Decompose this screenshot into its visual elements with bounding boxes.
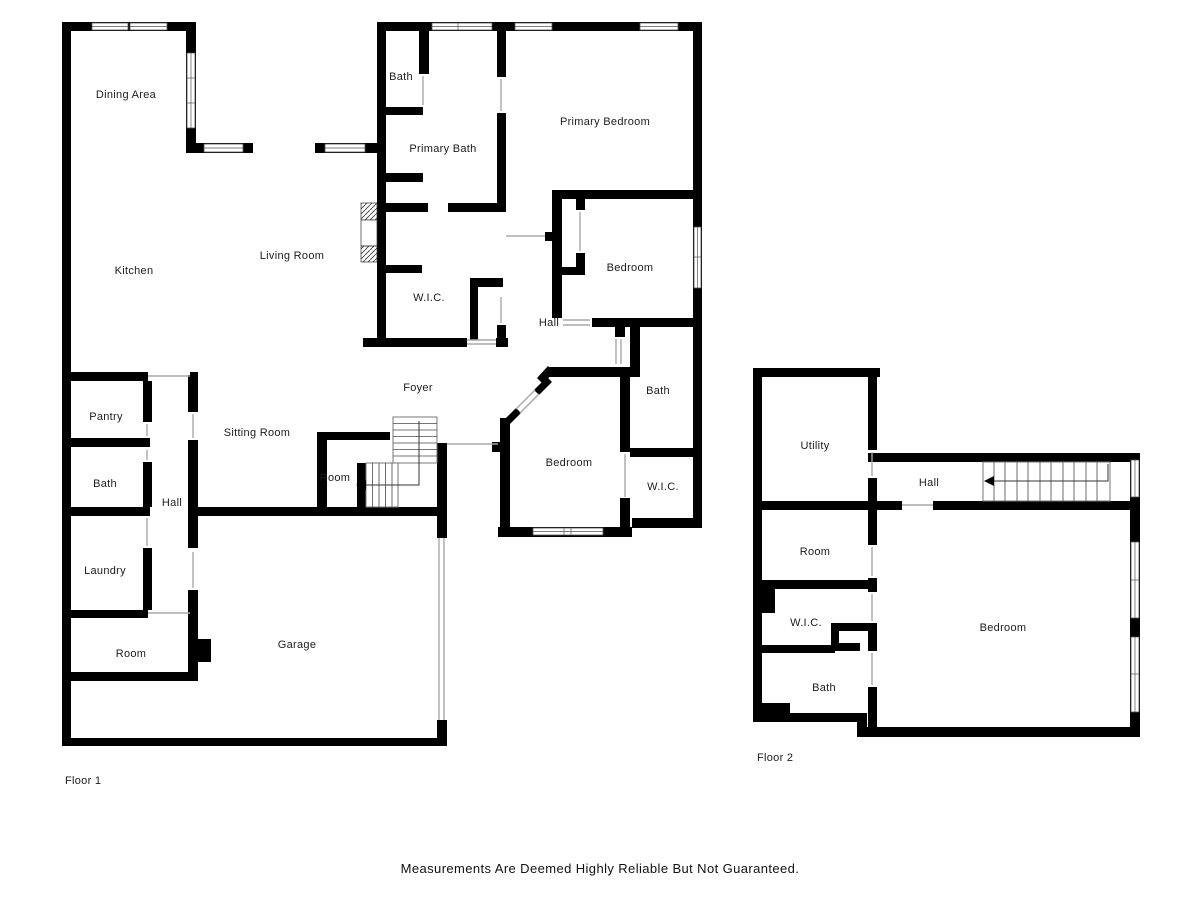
room-label-room-lower: Room	[116, 648, 147, 660]
room-label-wic-primary: W.I.C.	[413, 292, 445, 304]
floor2-title: Floor 2	[757, 752, 793, 764]
room-label-sitting-room: Sitting Room	[224, 427, 291, 439]
room-label-laundry: Laundry	[84, 565, 126, 577]
room-label-bath-floor2: Bath	[812, 682, 836, 694]
floor1-stairs	[356, 417, 437, 507]
floor-plan-page: Dining Area Bath Primary Bath Primary Be…	[0, 0, 1200, 900]
disclaimer-text: Measurements Are Deemed Highly Reliable …	[401, 861, 800, 876]
floor-plan-canvas: Dining Area Bath Primary Bath Primary Be…	[0, 0, 1200, 900]
room-label-foyer: Foyer	[403, 382, 433, 394]
floor1-walls	[62, 22, 702, 746]
room-label-hall-left: Hall	[162, 497, 182, 509]
room-label-kitchen: Kitchen	[115, 265, 154, 277]
room-label-living-room: Living Room	[260, 250, 324, 262]
room-label-bath-right: Bath	[646, 385, 670, 397]
floor2-stairs	[983, 462, 1110, 501]
room-label-utility: Utility	[801, 440, 830, 452]
room-label-hall-floor2: Hall	[919, 477, 939, 489]
room-label-hall-upper: Hall	[539, 317, 559, 329]
room-label-bath-top: Bath	[389, 71, 413, 83]
room-label-bath-left: Bath	[93, 478, 117, 490]
room-label-wic-right: W.I.C.	[647, 481, 679, 493]
room-label-room-floor2: Room	[800, 546, 831, 558]
room-label-bedroom-upper: Bedroom	[607, 262, 654, 274]
room-label-dining-area: Dining Area	[96, 89, 157, 101]
room-label-room-stairs: Room	[320, 472, 351, 484]
room-label-primary-bedroom: Primary Bedroom	[560, 116, 650, 128]
floor1-title: Floor 1	[65, 775, 101, 787]
room-label-bedroom-floor2: Bedroom	[980, 622, 1027, 634]
fireplace	[361, 203, 377, 262]
room-label-bedroom-center: Bedroom	[546, 457, 593, 469]
room-label-garage: Garage	[278, 639, 317, 651]
room-label-wic-floor2: W.I.C.	[790, 617, 822, 629]
room-label-primary-bath: Primary Bath	[409, 143, 476, 155]
room-label-pantry: Pantry	[89, 411, 123, 423]
